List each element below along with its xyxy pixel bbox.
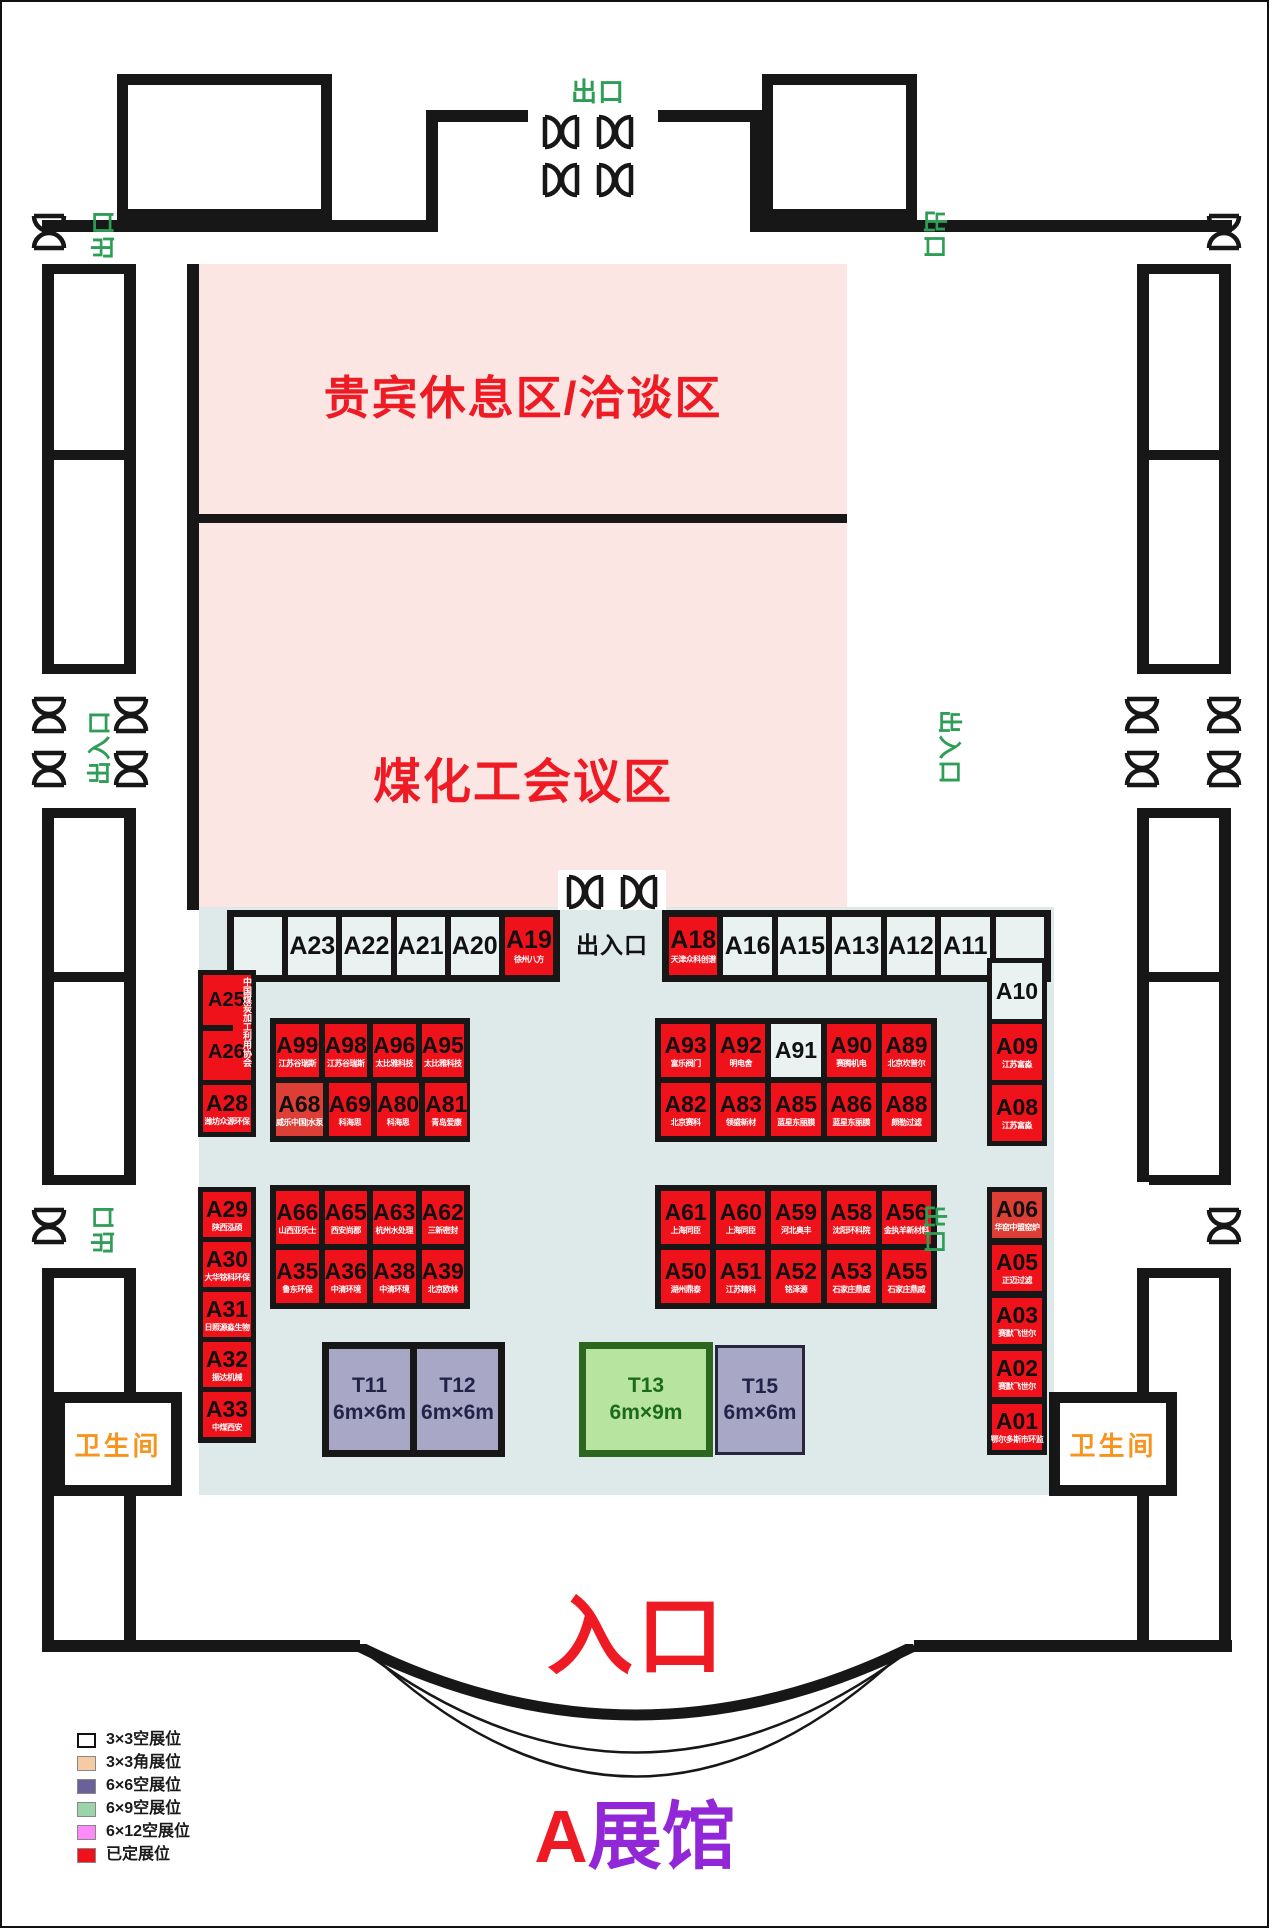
- booth-block-left-lower: A66山西亚乐士A65西安尚郡A63杭州水处理A62三新密封A35鲁东环保A36…: [270, 1185, 470, 1309]
- booth-company: 蓝星东丽膜: [832, 1119, 870, 1127]
- exit-label-top: 出口: [533, 72, 663, 109]
- booth-company: 石家庄鼎威: [888, 1286, 926, 1294]
- exit-label-right-top: 出口: [920, 205, 955, 265]
- booth-A36[interactable]: A36中清环境: [325, 1250, 368, 1303]
- booth-A98[interactable]: A98江苏谷瑞斯: [325, 1024, 368, 1077]
- legend-item: 已定展位: [77, 1847, 190, 1863]
- restroom-left: 卫生间: [54, 1392, 182, 1496]
- booth-A29[interactable]: A29陕西泓硕: [203, 1192, 251, 1237]
- wall-segment: [756, 220, 1232, 232]
- booth-number: A11: [943, 934, 987, 959]
- booth-A85[interactable]: A85蓝星东丽膜: [771, 1083, 820, 1136]
- booth-number: A88: [885, 1093, 927, 1116]
- booth-company: 沈阳环科院: [832, 1227, 870, 1235]
- wall-segment: [1219, 1268, 1231, 1652]
- wall-segment: [54, 1268, 136, 1278]
- double-door-icon: [560, 874, 664, 910]
- booth-number: A15: [779, 934, 825, 959]
- wall-segment: [124, 264, 136, 674]
- booth-number: A99: [276, 1034, 318, 1057]
- booth-A93[interactable]: A93富乐阀门: [661, 1024, 710, 1077]
- booth-company: 中国煤炭加工利用协会: [242, 977, 251, 1078]
- booth-A61[interactable]: A61上海同臣: [661, 1191, 710, 1244]
- booth-row: A66山西亚乐士A65西安尚郡A63杭州水处理A62三新密封: [276, 1191, 464, 1244]
- legend-label: 6×9空展位: [106, 1801, 181, 1817]
- booth-A60[interactable]: A60上海同臣: [716, 1191, 765, 1244]
- booth-company: 河北奥丰: [781, 1227, 811, 1235]
- booth-A11[interactable]: A11: [941, 917, 989, 975]
- booth-A13[interactable]: A13: [832, 917, 880, 975]
- wall-segment: [750, 110, 762, 232]
- legend-item: 6×12空展位: [77, 1824, 190, 1840]
- double-door-icon: [536, 114, 640, 152]
- booth-A51[interactable]: A51江苏精科: [716, 1250, 765, 1303]
- booth-number: A86: [830, 1093, 872, 1116]
- booth-row: A82北京赛科A83领盛新材A85蓝星东丽膜A86蓝星东丽膜A88颇勒过滤: [661, 1083, 931, 1136]
- booth-block-right-lower: A61上海同臣A60上海同臣A59河北奥丰A58沈阳环科院A56金执羊新材料A5…: [655, 1185, 937, 1309]
- booth-number: T12: [439, 1373, 475, 1399]
- booth-A52[interactable]: A52铭泽源: [771, 1250, 820, 1303]
- booth-A32[interactable]: A32振达机械: [203, 1342, 251, 1387]
- booth-A99[interactable]: A99江苏谷瑞斯: [276, 1024, 319, 1077]
- booth-number: A13: [834, 934, 880, 959]
- legend: 3×3空展位 3×3角展位 6×6空展位 6×9空展位 6×12空展位 已定展位: [77, 1732, 190, 1870]
- entrance-exit-label-left: 出入口: [80, 703, 115, 793]
- wall-segment: [1149, 450, 1231, 460]
- legend-label: 6×6空展位: [106, 1778, 181, 1794]
- booth-company: 日照源淼生物: [205, 1324, 250, 1332]
- booth-company: 湖州鼎泰: [671, 1286, 701, 1294]
- hall-title: A展馆: [402, 1800, 868, 1874]
- booth-number: A52: [775, 1260, 817, 1283]
- booth-number: A36: [325, 1260, 367, 1283]
- booth-A59[interactable]: A59河北奥丰: [771, 1191, 820, 1244]
- booth-A58[interactable]: A58沈阳环科院: [827, 1191, 876, 1244]
- room-top-right: [762, 74, 917, 220]
- booth-column-left-top: A25 A26 中国煤炭加工利用协会 A28 潍坊众源环保: [198, 970, 256, 1137]
- exit-label-right-bottom: 出口: [920, 1200, 955, 1260]
- booth-number: A05: [996, 1251, 1038, 1274]
- booth-number: A53: [830, 1260, 872, 1283]
- booth-company: 江苏谷瑞斯: [327, 1060, 365, 1068]
- booth-company: 徐州八方: [514, 956, 544, 964]
- booth-company: 石家庄鼎威: [832, 1286, 870, 1294]
- booth-T15[interactable]: T15 6m×6m: [715, 1345, 805, 1455]
- booth-column-left-bottom: A29陕西泓硕A30大华铭科环保A31日照源淼生物A32振达机械A33中煤西安: [198, 1187, 256, 1443]
- booth-company: 上海同臣: [726, 1227, 756, 1235]
- booth-A18[interactable]: A18天津众科创谱: [669, 917, 717, 975]
- legend-swatch-icon: [77, 1756, 96, 1771]
- booth-company: 江苏精科: [726, 1286, 756, 1294]
- booth-company: 中清环境: [331, 1286, 361, 1294]
- double-door-icon: [536, 162, 640, 200]
- booth-number: A60: [720, 1201, 762, 1224]
- booth-A06[interactable]: A06华窑中盟窑炉: [992, 1192, 1042, 1238]
- legend-swatch-icon: [77, 1848, 96, 1863]
- booth-A23[interactable]: A23: [288, 917, 336, 975]
- booth-number: A55: [885, 1260, 927, 1283]
- legend-swatch-icon: [77, 1779, 96, 1794]
- booth-company: 赛默飞世尔: [998, 1383, 1036, 1391]
- booth-row: A68威乐中国|水泵A69科海思A80科海思A81青岛爱康: [276, 1083, 464, 1136]
- booth-A16[interactable]: A16: [723, 917, 771, 975]
- double-door-icon: [29, 1201, 67, 1251]
- wall-segment: [914, 1640, 1232, 1652]
- booth-number: A89: [885, 1034, 927, 1057]
- booth-row: A50湖州鼎泰A51江苏精科A52铭泽源A53石家庄鼎威A55石家庄鼎威: [661, 1250, 931, 1303]
- booth-T13[interactable]: T13 6m×9m: [579, 1342, 713, 1457]
- wall-segment: [426, 110, 528, 122]
- booth-company: 赛腾机电: [836, 1060, 866, 1068]
- entrance-exit-label-right: 出入口: [935, 703, 970, 793]
- booth-number: A19: [506, 928, 552, 953]
- booth-company: 北京欧林: [428, 1286, 458, 1294]
- booth-number: A23: [289, 934, 335, 959]
- hall-title-letter: A: [534, 1795, 587, 1878]
- booth-number: A50: [665, 1260, 707, 1283]
- exit-label-left-bottom: 出口: [84, 1200, 119, 1260]
- booth-company: 铭泽源: [785, 1286, 808, 1294]
- wall-segment: [54, 264, 136, 274]
- booth-company: 江苏富淼: [1002, 1122, 1032, 1130]
- booth-A31[interactable]: A31日照源淼生物: [203, 1292, 251, 1337]
- vip-area-title: 贵宾休息区/洽谈区: [199, 362, 847, 428]
- booth-divider: [203, 1025, 233, 1031]
- booth-number: A93: [665, 1034, 707, 1057]
- booth-company: 赛默飞世尔: [998, 1330, 1036, 1338]
- booth-number: A38: [373, 1260, 415, 1283]
- booth-A20[interactable]: A20: [451, 917, 499, 975]
- booth-number: A06: [996, 1198, 1038, 1221]
- booth-A63[interactable]: A63杭州水处理: [373, 1191, 416, 1244]
- booth-A21[interactable]: A21: [397, 917, 445, 975]
- booth-T11[interactable]: T11 6m×6m: [329, 1349, 410, 1450]
- booth-A62[interactable]: A62三新密封: [422, 1191, 465, 1244]
- booth-number: A08: [996, 1096, 1038, 1119]
- booth-company: 华窑中盟窑炉: [995, 1224, 1040, 1232]
- wall-segment: [1219, 808, 1231, 1185]
- booth-A68[interactable]: A68威乐中国|水泵: [276, 1083, 323, 1136]
- legend-swatch-icon: [77, 1733, 96, 1748]
- booth-company: 科海思: [339, 1119, 362, 1127]
- booth-company: 鄂尔多斯市环监: [991, 1436, 1044, 1444]
- booth-company: 江苏谷瑞斯: [279, 1060, 317, 1068]
- booth-number: A33: [206, 1398, 248, 1421]
- booth-number: A26: [208, 1041, 245, 1064]
- booth-company: 青岛爱康: [431, 1119, 461, 1127]
- booth-company: 江苏富淼: [1002, 1061, 1032, 1069]
- booth-number: A12: [888, 934, 934, 959]
- booth-block-right-upper: A93富乐阀门A92明电舍A91A90赛腾机电A89北京坎普尔A82北京赛科A8…: [655, 1018, 937, 1142]
- booth-number: T11: [352, 1373, 387, 1399]
- booth-number: A68: [278, 1093, 320, 1116]
- booth-number: A80: [377, 1093, 419, 1116]
- booth-number: A91: [775, 1039, 817, 1062]
- booth-A82[interactable]: A82北京赛科: [661, 1083, 710, 1136]
- booth-number: A59: [775, 1201, 817, 1224]
- booth-A08[interactable]: A08江苏富淼: [992, 1085, 1042, 1141]
- booth-A19[interactable]: A19徐州八方: [505, 917, 553, 975]
- booth-A01[interactable]: A01鄂尔多斯市环监: [992, 1404, 1042, 1450]
- booth-company: 领盛新材: [726, 1119, 756, 1127]
- wall-segment: [42, 1268, 54, 1652]
- restroom-label: 卫生间: [1069, 1426, 1156, 1463]
- booth-number: A58: [830, 1201, 872, 1224]
- legend-label: 已定展位: [106, 1847, 170, 1863]
- booth-column-right-bottom: A06华窑中盟窑炉A05正迈过滤A03赛默飞世尔A02赛默飞世尔A01鄂尔多斯市…: [987, 1187, 1047, 1455]
- booth-company: 鲁东环保: [282, 1286, 312, 1294]
- booth-company: 杭州水处理: [376, 1227, 414, 1235]
- booth-company: 明电舍: [730, 1060, 753, 1068]
- wall-segment: [42, 264, 54, 674]
- booth-number: A32: [206, 1348, 248, 1371]
- booth-number: A85: [775, 1093, 817, 1116]
- wall-segment: [54, 808, 136, 818]
- t-booth-pair: T11 6m×6m T12 6m×6m: [322, 1342, 505, 1457]
- booth-number: A90: [830, 1034, 872, 1057]
- legend-label: 3×3角展位: [106, 1755, 181, 1771]
- wall-segment: [1137, 264, 1149, 674]
- wall-segment: [1219, 264, 1231, 674]
- wall-segment: [54, 972, 136, 982]
- booth-number: A20: [452, 934, 498, 959]
- booth-A90[interactable]: A90赛腾机电: [827, 1024, 876, 1077]
- booth-A12[interactable]: A12: [887, 917, 935, 975]
- booth-A25-A26[interactable]: A25 A26 中国煤炭加工利用协会: [203, 975, 251, 1080]
- wall-segment: [1149, 1175, 1231, 1185]
- booth-number: A95: [422, 1034, 464, 1057]
- booth-A95[interactable]: A95太比雅科技: [422, 1024, 465, 1077]
- booth-number: A01: [996, 1410, 1038, 1433]
- wall-segment: [124, 1268, 136, 1392]
- booth-A09[interactable]: A09江苏富淼: [992, 1024, 1042, 1080]
- booth-A83[interactable]: A83领盛新材: [716, 1083, 765, 1136]
- booth-A92[interactable]: A92明电舍: [716, 1024, 765, 1077]
- booth-number: A83: [720, 1093, 762, 1116]
- booth-size: 6m×6m: [421, 1400, 494, 1426]
- booth-company: 富乐阀门: [671, 1060, 701, 1068]
- booth-number: A35: [276, 1260, 318, 1283]
- booth-A91[interactable]: A91: [771, 1024, 820, 1077]
- restroom-label: 卫生间: [74, 1426, 161, 1463]
- double-door-icon: [29, 690, 67, 794]
- booth-number: A21: [398, 934, 444, 959]
- room-top-left: [117, 74, 332, 220]
- booth-A80[interactable]: A80科海思: [377, 1083, 419, 1136]
- booth-empty-slot[interactable]: [234, 917, 282, 975]
- booth-company: 蓝星东丽膜: [777, 1119, 815, 1127]
- booth-number: A31: [206, 1298, 248, 1321]
- booth-number: A82: [665, 1093, 707, 1116]
- wall-segment: [1149, 1268, 1231, 1278]
- booth-number: A66: [276, 1201, 318, 1224]
- wall-segment: [426, 110, 438, 232]
- wall-segment: [1149, 808, 1231, 818]
- booth-number: A98: [325, 1034, 367, 1057]
- restroom-right: 卫生间: [1049, 1392, 1177, 1496]
- floor-plan: 贵宾休息区/洽谈区 煤化工会议区 出口 出口 出入口 出口 出口 出入口 出口 …: [0, 0, 1269, 1928]
- booth-number: A92: [720, 1034, 762, 1057]
- booth-company: 北京坎普尔: [888, 1060, 926, 1068]
- double-door-icon: [1124, 690, 1162, 794]
- wall-segment: [124, 1495, 136, 1642]
- entrance-label: 入口: [502, 1594, 772, 1680]
- booth-number: A30: [206, 1248, 248, 1271]
- double-door-icon: [1206, 690, 1244, 794]
- double-door-icon: [111, 690, 149, 794]
- booth-A88[interactable]: A88颇勒过滤: [882, 1083, 931, 1136]
- legend-item: 6×6空展位: [77, 1778, 190, 1794]
- booth-A89[interactable]: A89北京坎普尔: [882, 1024, 931, 1077]
- conference-area-title: 煤化工会议区: [199, 742, 847, 812]
- booth-company: 大华铭科环保: [205, 1274, 250, 1282]
- booth-company: 潍坊众源环保: [205, 1118, 250, 1126]
- booth-company: 三新密封: [428, 1227, 458, 1235]
- booth-A28[interactable]: A28 潍坊众源环保: [203, 1085, 251, 1132]
- booth-company: 陕西泓硕: [212, 1224, 242, 1232]
- double-door-icon: [1206, 1201, 1244, 1251]
- booth-number: A02: [996, 1357, 1038, 1380]
- double-door-icon: [1206, 207, 1244, 257]
- booth-row-top-left: A23A22A21A20A19徐州八方: [227, 910, 560, 982]
- booth-row: A93富乐阀门A92明电舍A91A90赛腾机电A89北京坎普尔: [661, 1024, 931, 1077]
- booth-number: A28: [206, 1092, 248, 1115]
- legend-label: 6×12空展位: [106, 1824, 190, 1840]
- booth-number: T15: [742, 1374, 778, 1400]
- booth-company: 正迈过滤: [1002, 1277, 1032, 1285]
- booth-company: 北京赛科: [671, 1119, 701, 1127]
- booth-A81[interactable]: A81青岛爱康: [425, 1083, 467, 1136]
- booth-company: 天津众科创谱: [671, 956, 716, 964]
- booth-number: A29: [206, 1198, 248, 1221]
- booth-row: A99江苏谷瑞斯A98江苏谷瑞斯A96太比雅科技A95太比雅科技: [276, 1024, 464, 1077]
- booth-A53[interactable]: A53石家庄鼎威: [827, 1250, 876, 1303]
- booth-company: 西安尚郡: [331, 1227, 361, 1235]
- booth-size: 6m×9m: [610, 1400, 683, 1426]
- booth-A33[interactable]: A33中煤西安: [203, 1392, 251, 1437]
- wall-segment: [54, 450, 136, 460]
- booth-number: A61: [665, 1201, 707, 1224]
- booth-A35[interactable]: A35鲁东环保: [276, 1250, 319, 1303]
- legend-item: 3×3空展位: [77, 1732, 190, 1748]
- booth-company: 颇勒过滤: [891, 1119, 921, 1127]
- booth-number: A62: [422, 1201, 464, 1224]
- booth-company: 振达机械: [212, 1374, 242, 1382]
- booth-A50[interactable]: A50湖州鼎泰: [661, 1250, 710, 1303]
- booth-A30[interactable]: A30大华铭科环保: [203, 1242, 251, 1287]
- entrance-exit-label-center: 出入口: [560, 926, 664, 960]
- booth-number: A18: [670, 928, 716, 953]
- booth-number: A25: [208, 989, 245, 1012]
- wall-segment: [124, 808, 136, 1182]
- booth-A15[interactable]: A15: [778, 917, 826, 975]
- booth-number: A51: [720, 1260, 762, 1283]
- booth-number: A81: [425, 1093, 467, 1116]
- booth-company: 威乐中国|水泵: [276, 1119, 323, 1127]
- booth-size: 6m×6m: [333, 1400, 406, 1426]
- booth-company: 山西亚乐士: [279, 1227, 317, 1235]
- booth-A22[interactable]: A22: [342, 917, 390, 975]
- booth-size: 6m×6m: [724, 1400, 797, 1426]
- double-door-icon: [29, 207, 67, 257]
- booth-company: 中煤西安: [212, 1424, 242, 1432]
- legend-label: 3×3空展位: [106, 1732, 181, 1748]
- booth-A10[interactable]: A10: [992, 963, 1042, 1019]
- booth-number: A39: [422, 1260, 464, 1283]
- booth-row: A61上海同臣A60上海同臣A59河北奥丰A58沈阳环科院A56金执羊新材料: [661, 1191, 931, 1244]
- booth-number: A65: [325, 1201, 367, 1224]
- booth-T12[interactable]: T12 6m×6m: [417, 1349, 498, 1450]
- wall-segment: [54, 1175, 136, 1185]
- exit-label-left-top: 出口: [84, 205, 119, 265]
- booth-A05[interactable]: A05正迈过滤: [992, 1245, 1042, 1291]
- booth-A65[interactable]: A65西安尚郡: [325, 1191, 368, 1244]
- legend-item: 3×3角展位: [77, 1755, 190, 1771]
- area-divider-wall: [199, 514, 847, 523]
- legend-item: 6×9空展位: [77, 1801, 190, 1817]
- wall-segment: [1137, 1268, 1149, 1392]
- booth-number: A69: [329, 1093, 371, 1116]
- booth-number: A03: [996, 1304, 1038, 1327]
- wall-segment: [1149, 664, 1231, 674]
- booth-number: T13: [628, 1373, 664, 1399]
- booth-company: 上海同臣: [671, 1227, 701, 1235]
- booth-number: A10: [996, 980, 1038, 1003]
- hall-title-suffix: 展馆: [588, 1795, 736, 1878]
- booth-A69[interactable]: A69科海思: [329, 1083, 371, 1136]
- wall-segment: [187, 264, 199, 910]
- booth-company: 太比雅科技: [376, 1060, 414, 1068]
- booth-A66[interactable]: A66山西亚乐士: [276, 1191, 319, 1244]
- booth-A96[interactable]: A96太比雅科技: [373, 1024, 416, 1077]
- booth-number: A16: [725, 934, 771, 959]
- booth-A02[interactable]: A02赛默飞世尔: [992, 1351, 1042, 1397]
- booth-A86[interactable]: A86蓝星东丽膜: [827, 1083, 876, 1136]
- wall-segment: [1137, 1495, 1149, 1642]
- booth-A38[interactable]: A38中清环境: [373, 1250, 416, 1303]
- wall-segment: [42, 1640, 360, 1652]
- booth-number: A09: [996, 1035, 1038, 1058]
- booth-row: A35鲁东环保A36中清环境A38中清环境A39北京欧林: [276, 1250, 464, 1303]
- booth-column-right-top: A10A09江苏富淼A08江苏富淼: [987, 958, 1047, 1146]
- booth-number: A96: [373, 1034, 415, 1057]
- legend-swatch-icon: [77, 1802, 96, 1817]
- wall-segment: [1149, 972, 1231, 982]
- booth-company: 太比雅科技: [424, 1060, 462, 1068]
- booth-company: 中清环境: [379, 1286, 409, 1294]
- legend-swatch-icon: [77, 1825, 96, 1840]
- booth-company: 科海思: [387, 1119, 410, 1127]
- wall-segment: [1137, 808, 1149, 1182]
- wall-segment: [1149, 264, 1231, 274]
- booth-number: A63: [373, 1201, 415, 1224]
- booth-A39[interactable]: A39北京欧林: [422, 1250, 465, 1303]
- booth-A03[interactable]: A03赛默飞世尔: [992, 1298, 1042, 1344]
- booth-block-left-upper: A99江苏谷瑞斯A98江苏谷瑞斯A96太比雅科技A95太比雅科技A68威乐中国|…: [270, 1018, 470, 1142]
- wall-segment: [658, 110, 762, 122]
- booth-number: A22: [343, 934, 389, 959]
- wall-segment: [54, 664, 136, 674]
- wall-segment: [42, 808, 54, 1185]
